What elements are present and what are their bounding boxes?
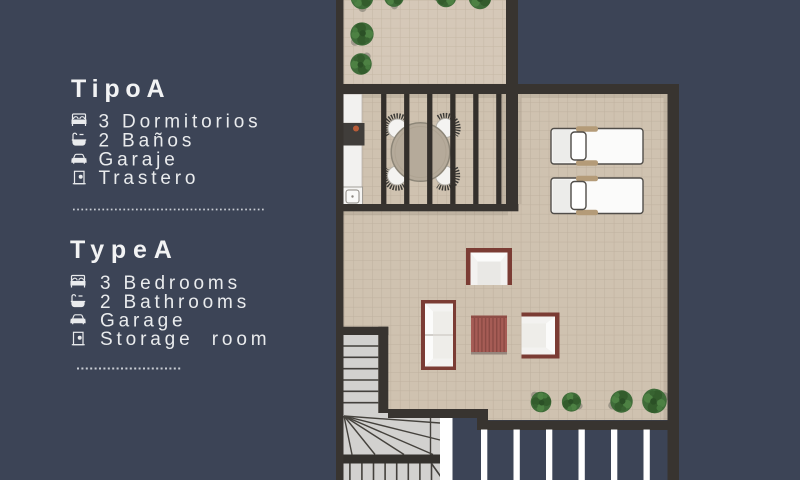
svg-text:2 Baños: 2 Baños: [99, 131, 196, 152]
svg-text:Trastero: Trastero: [99, 168, 200, 189]
svg-text:TypeA: TypeA: [70, 236, 179, 264]
svg-text:TipoA: TipoA: [71, 75, 170, 103]
svg-text:Storage room: Storage room: [100, 329, 270, 350]
svg-text:3 Dormitorios: 3 Dormitorios: [99, 112, 262, 133]
svg-text:Garage: Garage: [100, 310, 186, 331]
svg-text:3 Bedrooms: 3 Bedrooms: [100, 273, 241, 294]
